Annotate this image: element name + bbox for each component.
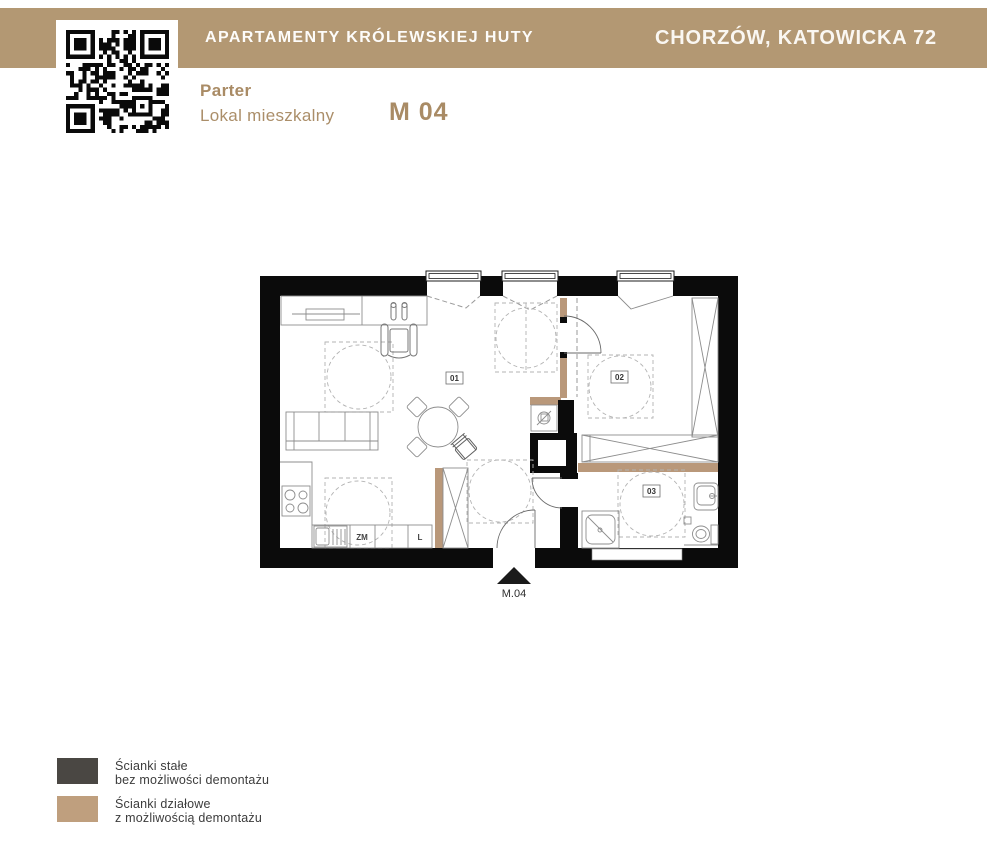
shower <box>582 511 619 548</box>
qr-panel <box>56 20 178 142</box>
legend-partition-line2: z możliwością demontażu <box>115 811 262 825</box>
page: { "header": { "title": "APARTAMENTY KRÓL… <box>0 0 987 855</box>
legend-fixed-line2: bez możliwości demontażu <box>115 773 269 787</box>
floor-plan-drawing: ZM L <box>250 262 750 607</box>
maneuvering-circle-hall <box>467 460 533 523</box>
door-entry <box>497 510 535 548</box>
legend-item-fixed-walls: Ścianki stałe bez możliwości demontażu <box>57 758 269 787</box>
dishwasher-label: ZM <box>356 533 368 542</box>
floor-label: Parter <box>200 81 252 101</box>
maneuvering-circle-bathroom <box>618 470 685 537</box>
qr-code-icon <box>66 30 169 133</box>
legend-partition-line1: Ścianki działowe <box>115 797 262 811</box>
tv-cabinet <box>281 296 427 325</box>
fixed-wall-swatch <box>57 758 98 784</box>
room-label-03: 03 <box>643 485 660 497</box>
floor-plan: ZM L <box>250 262 750 607</box>
bedroom-wardrobe <box>692 298 718 437</box>
stove <box>282 486 310 516</box>
window-3 <box>617 271 674 309</box>
legend-item-partition-walls: Ścianki działowe z możliwością demontażu <box>57 796 269 825</box>
entrance-label: M.04 <box>502 588 526 600</box>
partition-wall-swatch <box>57 796 98 822</box>
kitchen-sink <box>314 526 347 547</box>
door-bedroom <box>564 316 601 353</box>
svg-text:01: 01 <box>450 374 459 383</box>
utility-sink <box>531 405 557 431</box>
wall-niche <box>592 549 682 560</box>
window-1 <box>426 271 481 308</box>
unit-number: M 04 <box>389 98 449 127</box>
entrance-arrow-icon <box>497 567 531 584</box>
shaft-opening <box>538 440 566 466</box>
dining-table <box>406 396 469 457</box>
bed <box>582 435 718 462</box>
legend: Ścianki stałe bez możliwości demontażu Ś… <box>57 758 269 834</box>
unit-type-label: Lokal mieszkalny <box>200 106 334 126</box>
room-label-02: 02 <box>611 371 628 383</box>
toilet <box>684 517 718 545</box>
legend-fixed-line1: Ścianki stałe <box>115 759 269 773</box>
room-label-01: 01 <box>446 372 463 384</box>
address-label: CHORZÓW, KATOWICKA 72 <box>655 8 937 68</box>
maneuvering-circle-living <box>325 342 393 412</box>
wheelchair-symbol <box>381 303 417 359</box>
sofa <box>286 412 378 450</box>
door-bathroom <box>532 478 562 508</box>
svg-text:03: 03 <box>647 487 656 496</box>
fridge-label: L <box>418 533 423 542</box>
maneuvering-circle-bedroom <box>588 355 653 418</box>
maneuvering-circle-window <box>495 303 557 372</box>
page-title: APARTAMENTY KRÓLEWSKIEJ HUTY <box>205 8 534 68</box>
hall-wardrobe <box>443 468 468 548</box>
window-2 <box>502 271 558 310</box>
svg-text:02: 02 <box>615 373 624 382</box>
washbasin <box>694 483 718 510</box>
